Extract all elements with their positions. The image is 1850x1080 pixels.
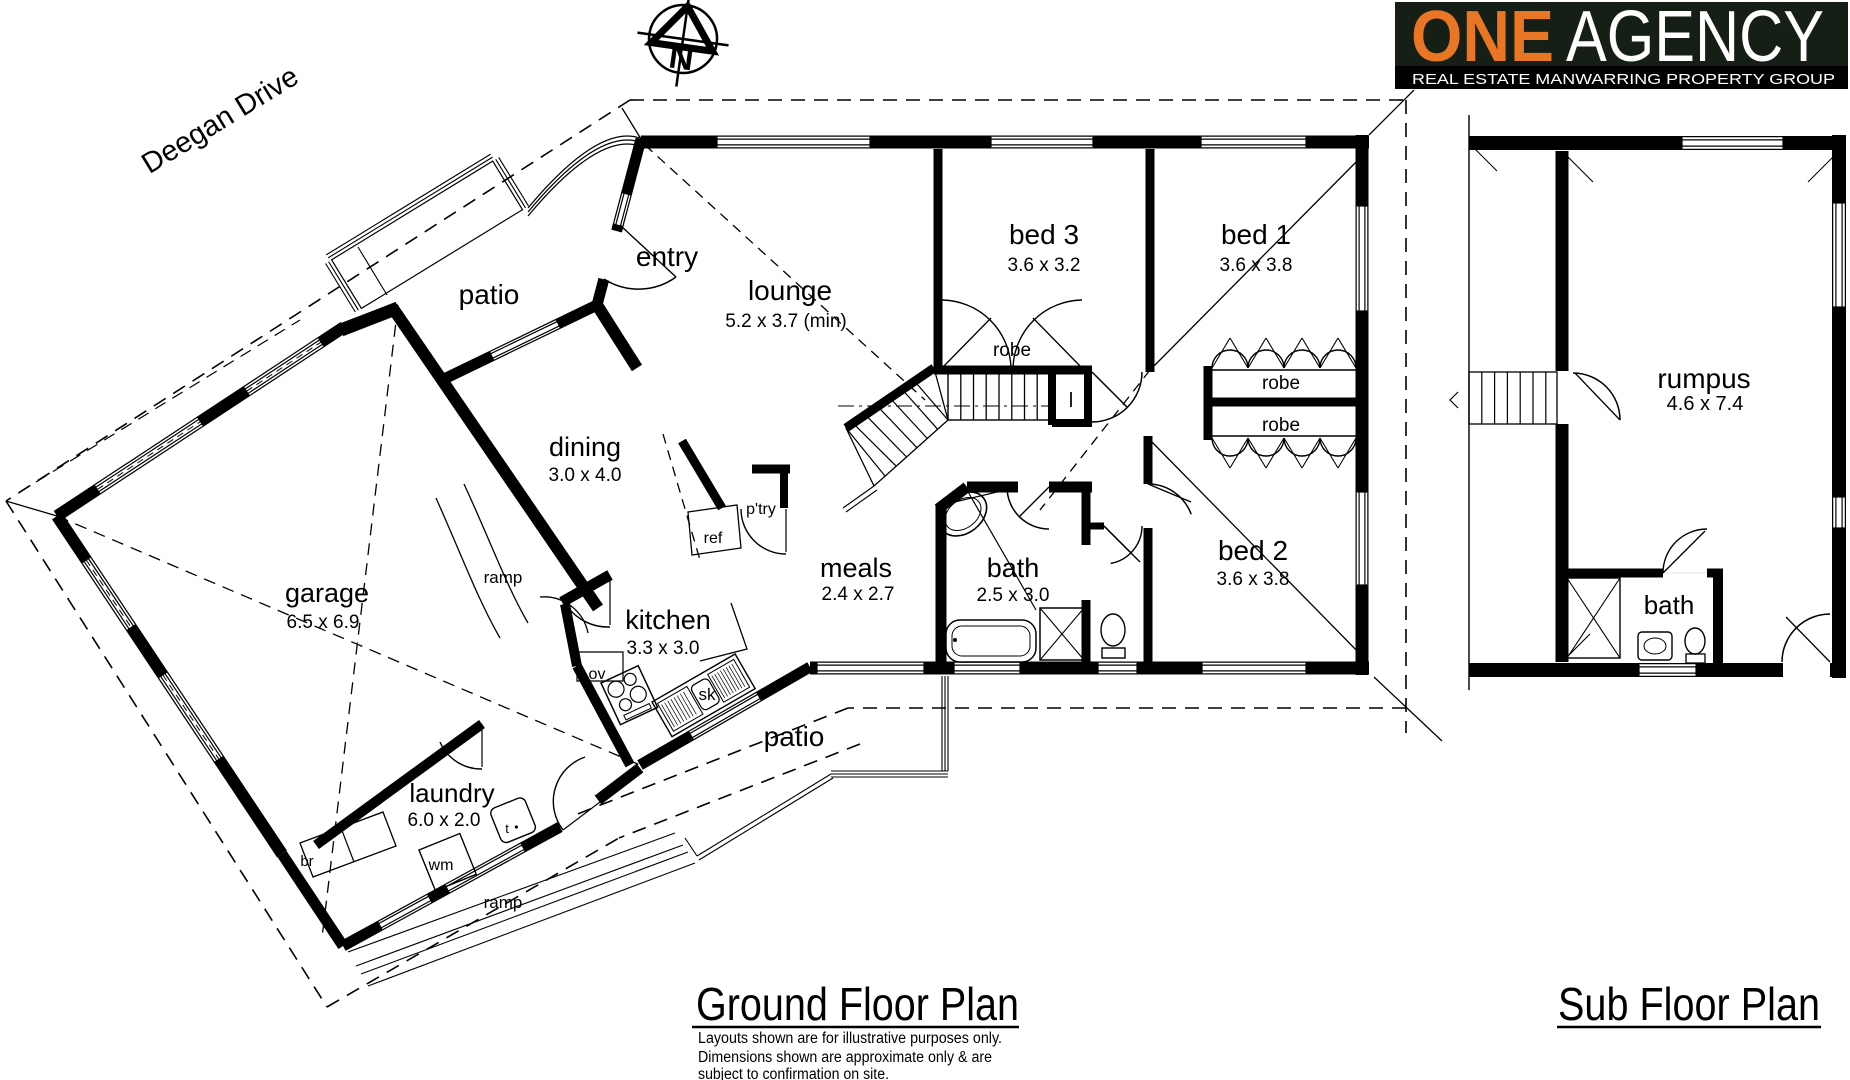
svg-text:garage: garage: [285, 578, 369, 608]
svg-text:AGENCY: AGENCY: [1566, 0, 1824, 77]
svg-text:Sub Floor Plan: Sub Floor Plan: [1558, 978, 1820, 1030]
svg-text:Layouts shown are for illustra: Layouts shown are for illustrative purpo…: [698, 1030, 1002, 1047]
svg-text:bath: bath: [987, 553, 1040, 583]
svg-text:3.6 x 3.8: 3.6 x 3.8: [1217, 569, 1290, 590]
svg-text:robe: robe: [1262, 373, 1300, 394]
svg-text:ramp: ramp: [484, 893, 523, 912]
svg-text:patio: patio: [764, 721, 825, 752]
svg-text:2.5 x 3.0: 2.5 x 3.0: [977, 585, 1050, 606]
svg-text:robe: robe: [1262, 415, 1300, 436]
svg-text:wm: wm: [428, 857, 454, 874]
svg-text:3.6 x 3.2: 3.6 x 3.2: [1008, 255, 1081, 276]
svg-text:3.0 x 4.0: 3.0 x 4.0: [549, 465, 622, 486]
svg-text:5.2 x 3.7 (min): 5.2 x 3.7 (min): [725, 311, 846, 332]
svg-text:N: N: [667, 37, 697, 78]
svg-text:bed 3: bed 3: [1009, 219, 1079, 250]
svg-text:laundry: laundry: [409, 778, 494, 808]
svg-text:sk: sk: [699, 685, 717, 704]
svg-text:kitchen: kitchen: [625, 605, 711, 635]
svg-text:3.3 x 3.0: 3.3 x 3.0: [627, 638, 700, 659]
svg-text:l: l: [1069, 390, 1073, 412]
svg-text:ONE: ONE: [1411, 0, 1554, 77]
svg-text:ramp: ramp: [484, 568, 523, 587]
svg-text:4.6 x 7.4: 4.6 x 7.4: [1667, 393, 1744, 415]
svg-text:Ground Floor Plan: Ground Floor Plan: [696, 978, 1019, 1030]
svg-text:robe: robe: [993, 340, 1031, 361]
svg-text:meals: meals: [820, 553, 892, 583]
svg-text:2.4 x 2.7: 2.4 x 2.7: [822, 584, 895, 605]
svg-text:subject to confirmation on sit: subject to confirmation on site.: [698, 1066, 889, 1080]
svg-text:ref: ref: [704, 530, 723, 547]
svg-text:6.0 x 2.0: 6.0 x 2.0: [408, 810, 481, 831]
svg-text:3.6 x 3.8: 3.6 x 3.8: [1220, 255, 1293, 276]
svg-text:patio: patio: [459, 279, 520, 310]
svg-text:rumpus: rumpus: [1657, 363, 1750, 394]
svg-text:Dimensions shown are approxima: Dimensions shown are approximate only & …: [698, 1049, 992, 1066]
svg-text:bed 1: bed 1: [1221, 219, 1291, 250]
svg-text:bed 2: bed 2: [1218, 535, 1288, 566]
svg-text:t: t: [505, 821, 509, 836]
svg-text:REAL ESTATE MANWARRING PROPERT: REAL ESTATE MANWARRING PROPERTY GROUP: [1412, 72, 1835, 88]
svg-text:ov: ov: [589, 666, 606, 683]
svg-text:p'try: p'try: [746, 501, 776, 518]
svg-text:dining: dining: [549, 432, 621, 462]
svg-text:br: br: [300, 853, 313, 870]
svg-text:lounge: lounge: [748, 275, 832, 306]
svg-text:6.5 x 6.9: 6.5 x 6.9: [287, 612, 360, 633]
svg-text:bath: bath: [1644, 590, 1695, 620]
svg-text:entry: entry: [636, 241, 698, 272]
